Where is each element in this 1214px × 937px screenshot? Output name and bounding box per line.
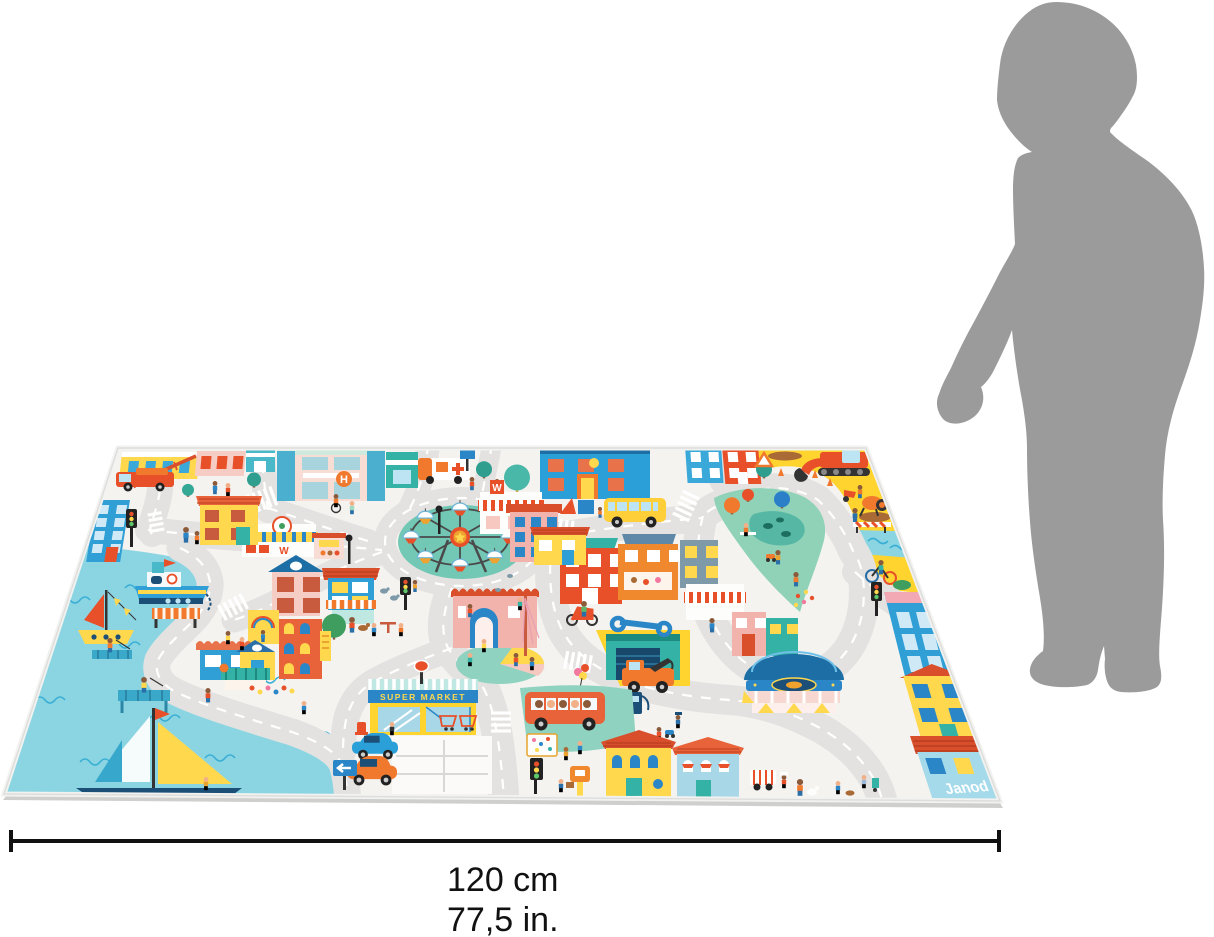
svg-text:H: H bbox=[340, 474, 348, 486]
svg-text:Janod: Janod bbox=[942, 778, 992, 798]
svg-text:W: W bbox=[492, 483, 502, 494]
svg-text:120 cm: 120 cm bbox=[447, 861, 559, 899]
svg-text:W: W bbox=[279, 546, 289, 557]
svg-text:SUPER MARKET: SUPER MARKET bbox=[380, 692, 466, 702]
svg-text:77,5 in.: 77,5 in. bbox=[447, 901, 559, 937]
